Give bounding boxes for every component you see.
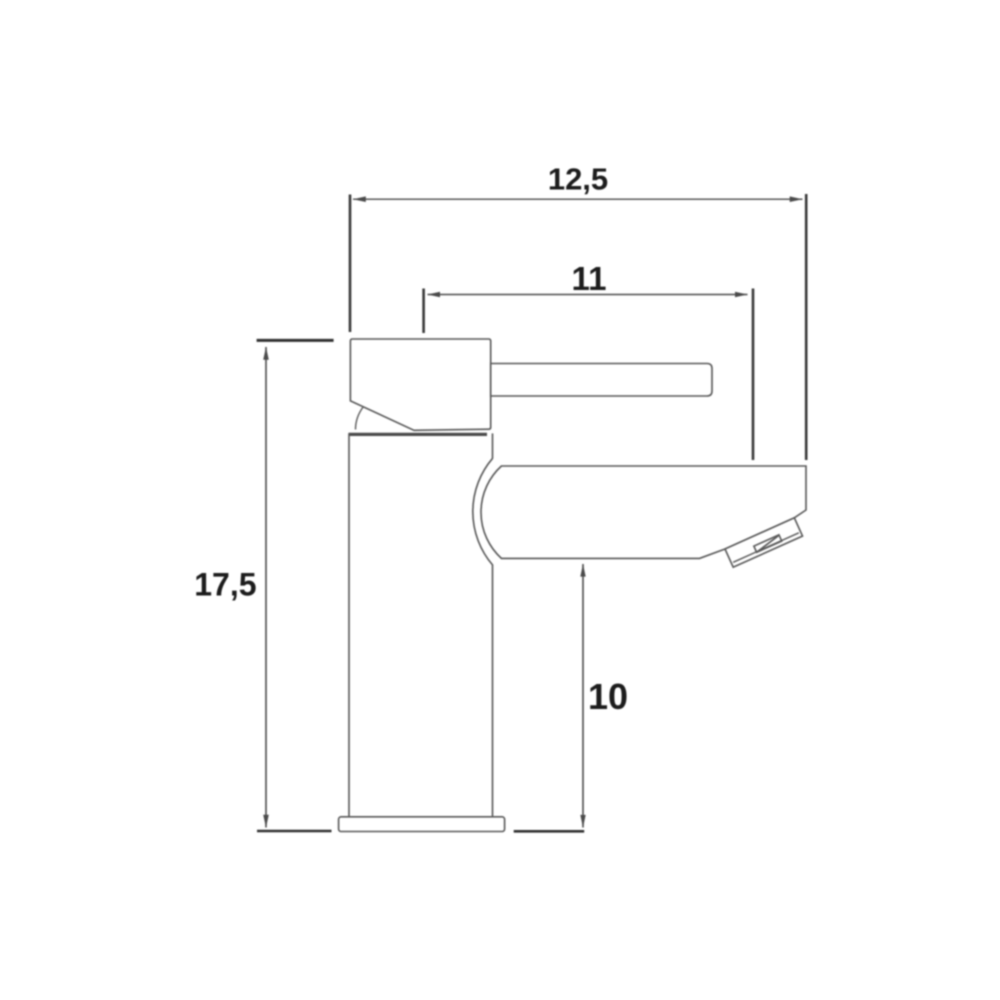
svg-text:10: 10 xyxy=(588,676,628,717)
svg-text:12,5: 12,5 xyxy=(548,162,608,197)
svg-text:11: 11 xyxy=(572,260,607,297)
svg-text:17,5: 17,5 xyxy=(194,567,256,603)
